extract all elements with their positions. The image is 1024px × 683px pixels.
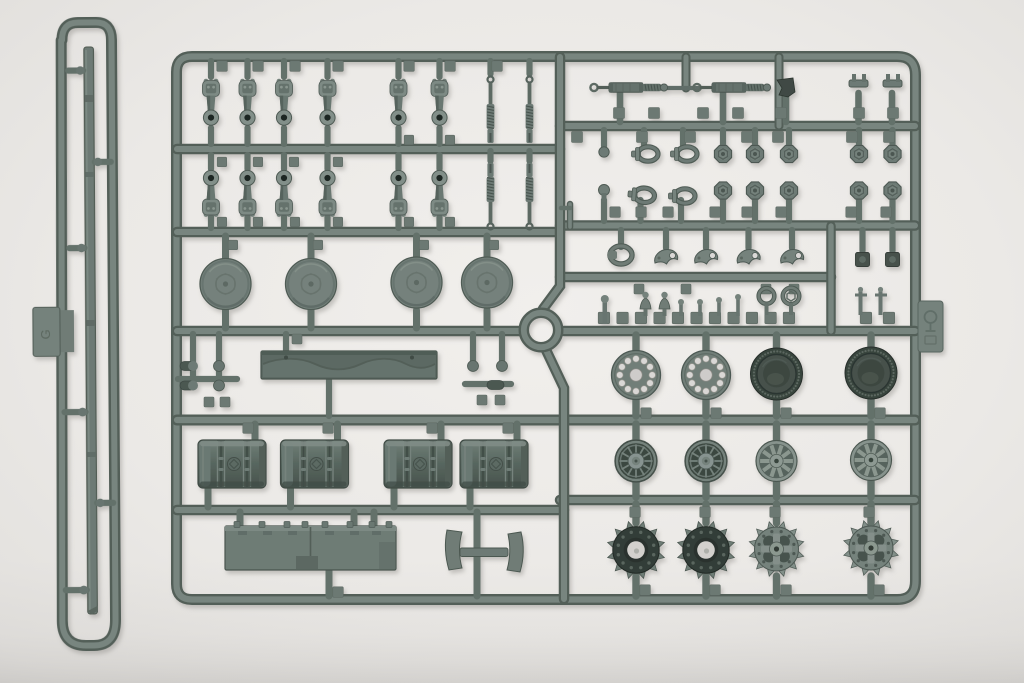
svg-text:G: G <box>38 329 53 339</box>
